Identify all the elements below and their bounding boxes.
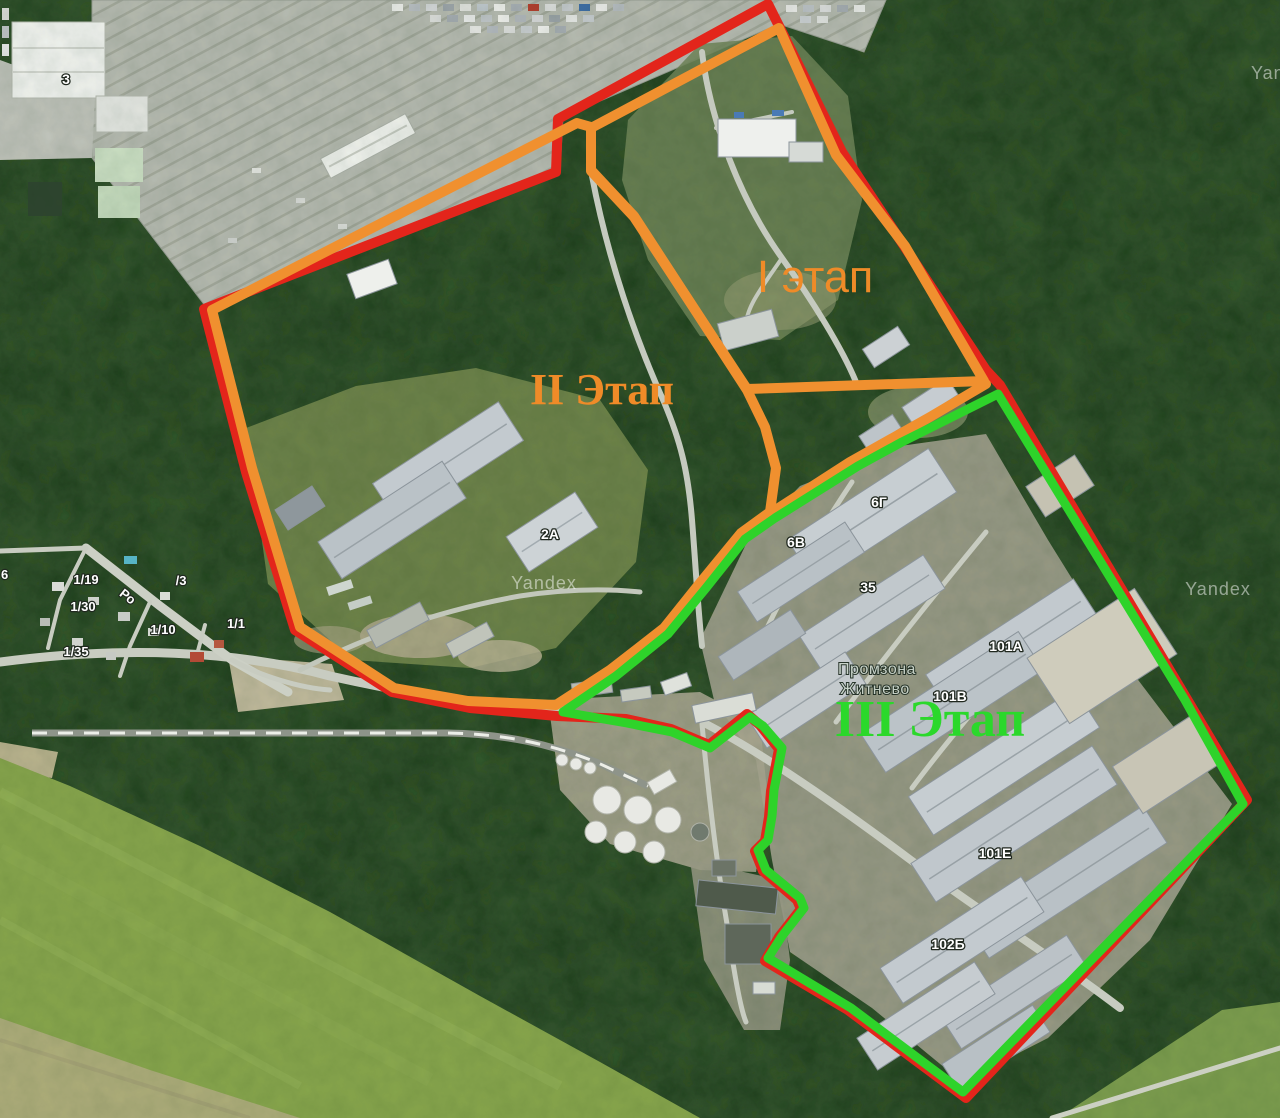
- building-label-102b: 102Б: [931, 936, 964, 952]
- phase3-label: III Этап: [835, 691, 1025, 748]
- terrain-noise-overlay: [0, 0, 1280, 1118]
- yandex-watermark-top-right: Yandex: [1251, 63, 1280, 83]
- phase1-label: I этап: [757, 251, 873, 302]
- address-label-1-1: 1/1: [227, 616, 245, 631]
- building-label-6g: 6Г: [871, 494, 887, 510]
- phase2-label: II Этап: [530, 365, 674, 414]
- satellite-map: I этап II Этап III Этап Промзона Житнево…: [0, 0, 1280, 1118]
- address-label-1-10: 1/10: [150, 622, 175, 637]
- address-label-6: 6: [1, 567, 8, 582]
- address-label-3: /3: [176, 573, 187, 588]
- address-label-1-30: 1/30: [70, 599, 95, 614]
- building-label-101e: 101Е: [979, 845, 1012, 861]
- building-label-6v: 6В: [787, 534, 805, 550]
- building-label-101a: 101А: [989, 638, 1022, 654]
- yandex-watermark-mid-right: Yandex: [1185, 579, 1251, 599]
- building-label-2a: 2А: [541, 526, 559, 542]
- building-label-101v: 101В: [933, 688, 966, 704]
- place-label-line1: Промзона: [838, 661, 916, 678]
- place-label-line2: Житнево: [840, 681, 910, 698]
- address-label-1-35: 1/35: [63, 644, 88, 659]
- address-label-1-19: 1/19: [73, 572, 98, 587]
- building-label-3: 3: [62, 71, 70, 87]
- building-label-35: 35: [860, 579, 876, 595]
- yandex-watermark-center: Yandex: [511, 573, 577, 593]
